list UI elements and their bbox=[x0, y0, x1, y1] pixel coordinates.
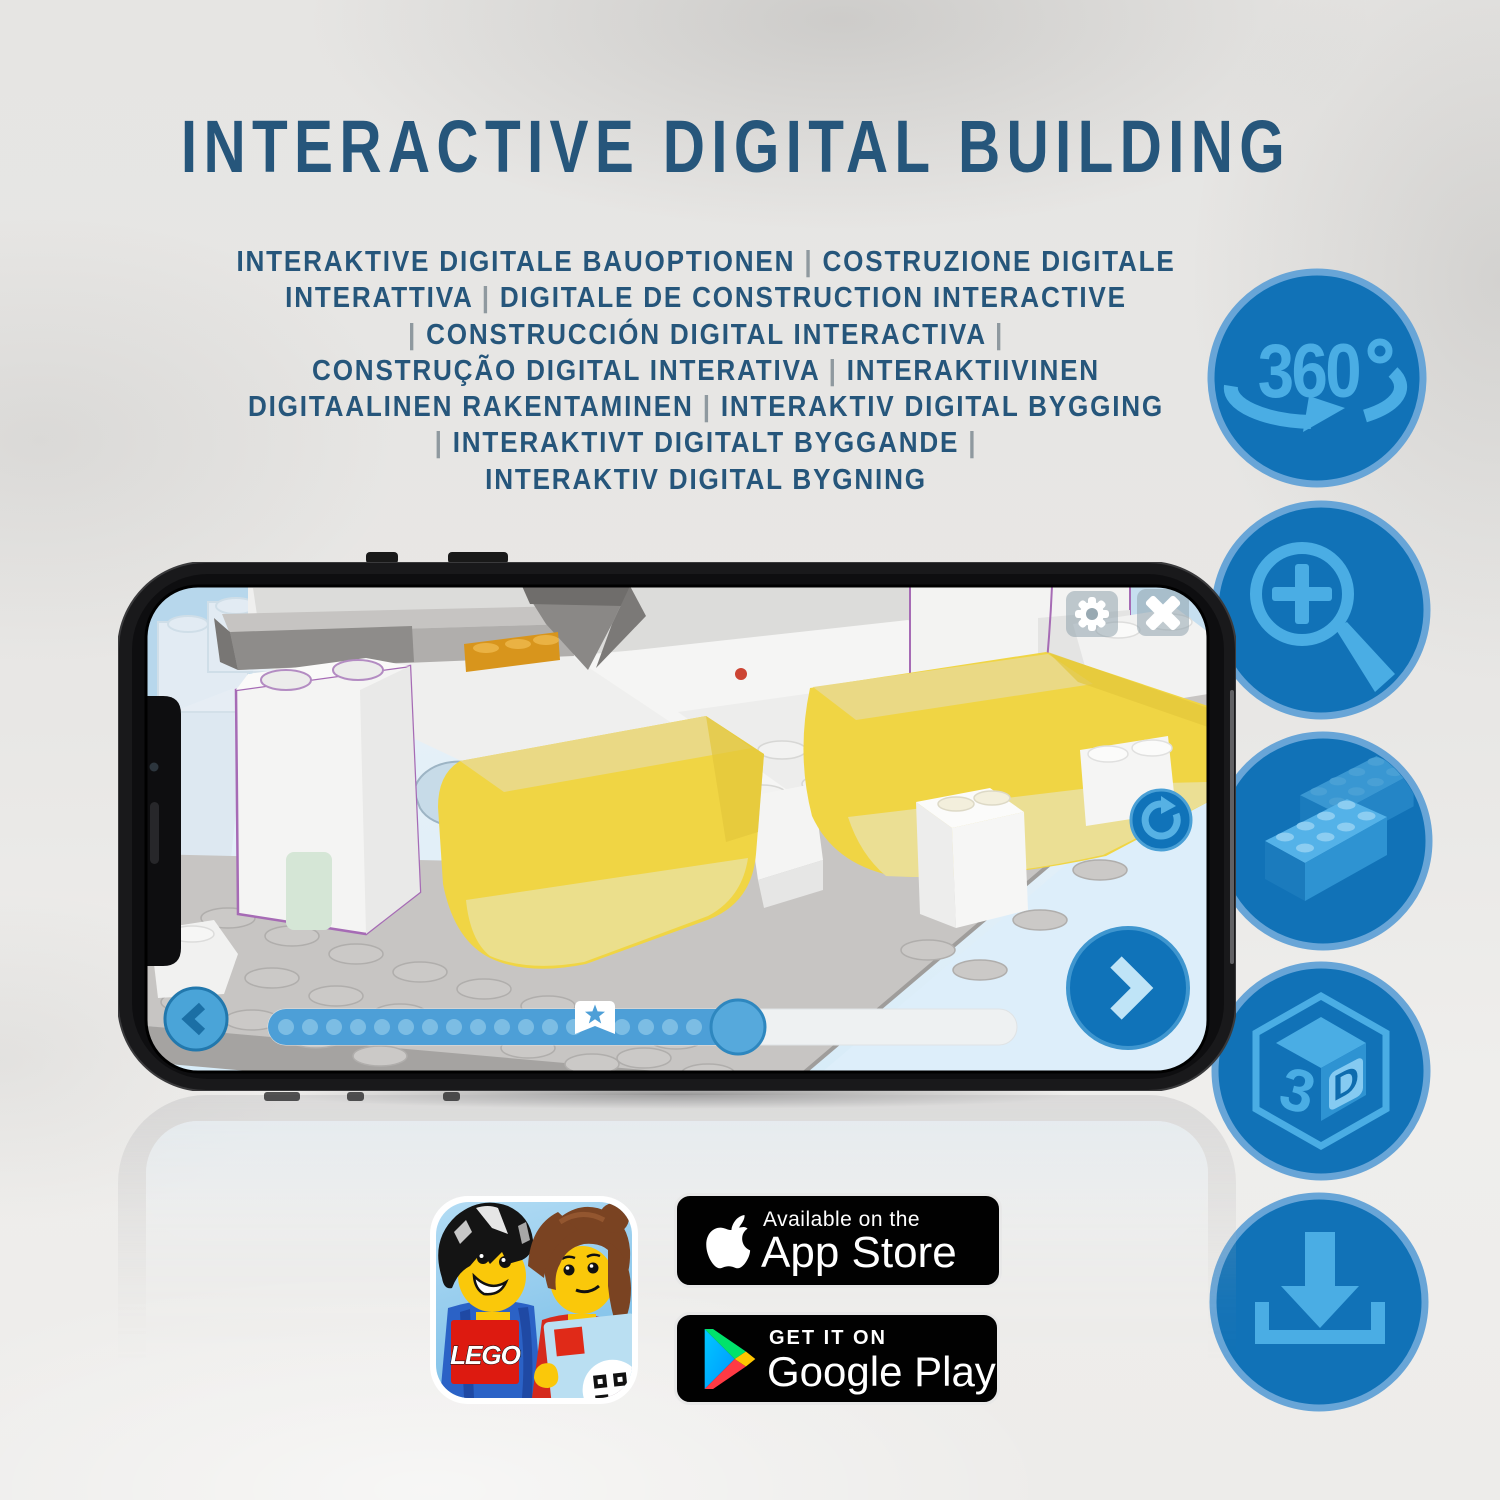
svg-text:LEGO: LEGO bbox=[450, 1340, 520, 1370]
